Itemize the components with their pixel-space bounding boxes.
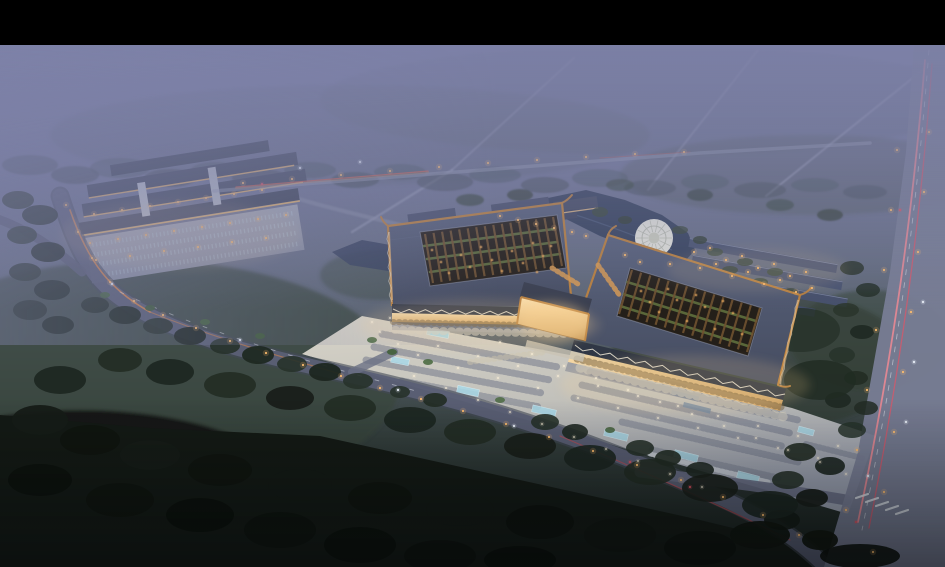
- cool-light: [577, 397, 579, 399]
- tree-blob: [204, 372, 256, 398]
- cool-light: [597, 385, 599, 387]
- courtyard-speck: [686, 320, 688, 322]
- cool-light: [477, 355, 479, 357]
- cool-light: [437, 345, 439, 347]
- warm-light: [910, 311, 912, 313]
- tree-blob: [829, 347, 855, 363]
- warm-light: [902, 371, 904, 373]
- tree-blob: [423, 359, 433, 365]
- tree-blob: [98, 348, 142, 372]
- cool-light: [413, 375, 415, 377]
- tree-blob: [242, 346, 274, 364]
- cool-light: [595, 377, 597, 379]
- tree-blob: [34, 366, 86, 394]
- aerial-rendering: [0, 0, 945, 567]
- cool-light: [457, 367, 459, 369]
- warm-light: [379, 387, 381, 389]
- cool-light: [517, 365, 519, 367]
- tree-blob: [309, 363, 341, 381]
- warm-light: [340, 375, 342, 377]
- tree-blob: [343, 373, 373, 389]
- cool-light: [557, 375, 559, 377]
- tree-blob: [390, 386, 410, 398]
- tree-blob: [387, 349, 397, 355]
- cool-light: [537, 387, 539, 389]
- cool-light: [627, 389, 629, 391]
- cool-light: [497, 377, 499, 379]
- courtyard-speck: [732, 312, 734, 314]
- warm-light: [265, 352, 267, 354]
- warm-light: [875, 329, 877, 331]
- courtyard-speck: [658, 311, 660, 313]
- tree-blob: [146, 359, 194, 385]
- cool-light: [445, 387, 447, 389]
- rendering-canvas: [0, 0, 945, 567]
- warm-light: [302, 364, 304, 366]
- courtyard-speck: [741, 333, 743, 335]
- tree-blob: [850, 325, 874, 339]
- vignette-bottom: [0, 400, 945, 567]
- warm-light: [420, 398, 422, 400]
- courtyard-speck: [714, 328, 716, 330]
- letterbox-top: [0, 0, 945, 45]
- cool-light: [531, 353, 533, 355]
- car-headlight: [913, 361, 915, 363]
- car-headlight: [397, 389, 399, 391]
- cool-light: [563, 365, 565, 367]
- cool-light: [637, 395, 639, 397]
- cool-light: [417, 354, 419, 356]
- fog-overlay-left: [0, 45, 500, 345]
- warm-light: [866, 389, 868, 391]
